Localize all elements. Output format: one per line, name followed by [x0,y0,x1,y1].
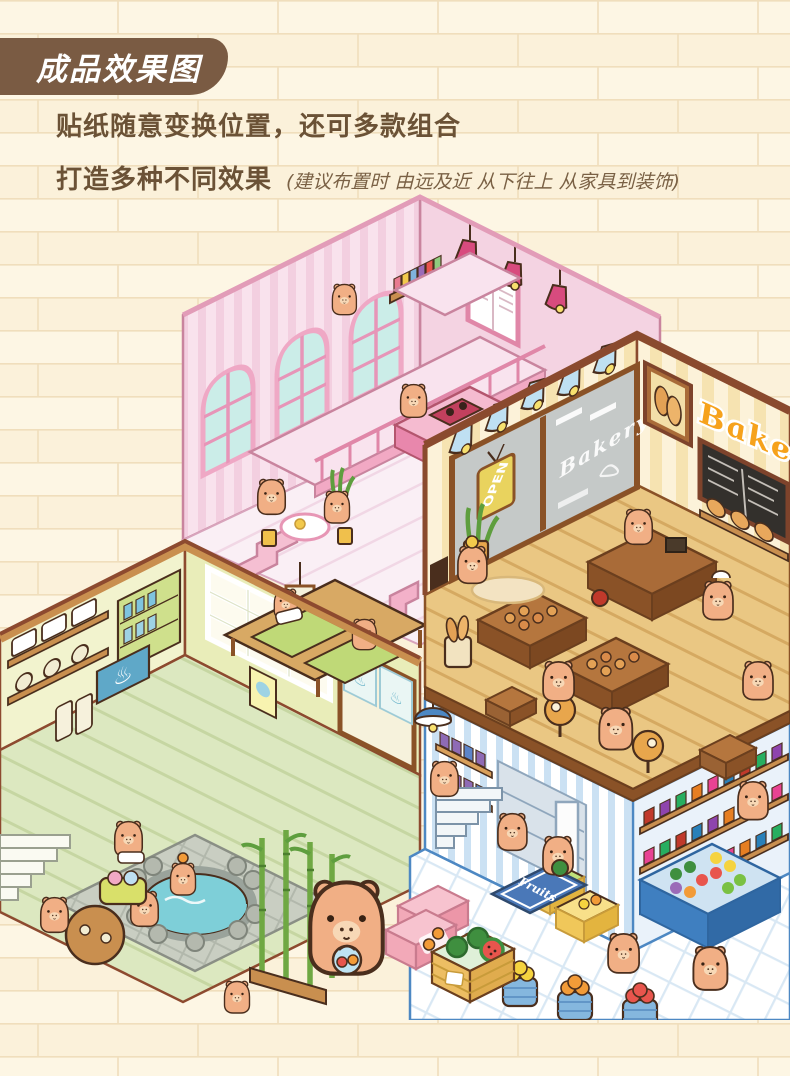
description-line2: 打造多种不同效果 [56,159,272,196]
stool [592,590,608,606]
capybara-rooms-illustration: ♨ ♨ ♨ [0,190,790,1020]
description-line1: 贴纸随意变换位置，还可多款组合 [56,106,680,143]
fruit-bag [333,946,361,974]
cash-register [666,538,686,552]
orange-on-head [178,853,188,863]
chef-hat [712,571,730,578]
finished-effect-badge: 成品效果图 [0,38,228,95]
crate-label [445,971,464,986]
watermelon-in-paws [552,860,568,876]
hanging-robe [56,700,72,742]
bread-crown [466,536,478,548]
description-block: 贴纸随意变换位置，还可多款组合 打造多种不同效果 (建议布置时 由远及近 从下往… [56,106,680,196]
description-note: (建议布置时 由远及近 从下往上 从家具到装饰) [286,167,680,194]
capybara-mascot [310,882,383,974]
badge-label: 成品效果图 [0,44,201,89]
